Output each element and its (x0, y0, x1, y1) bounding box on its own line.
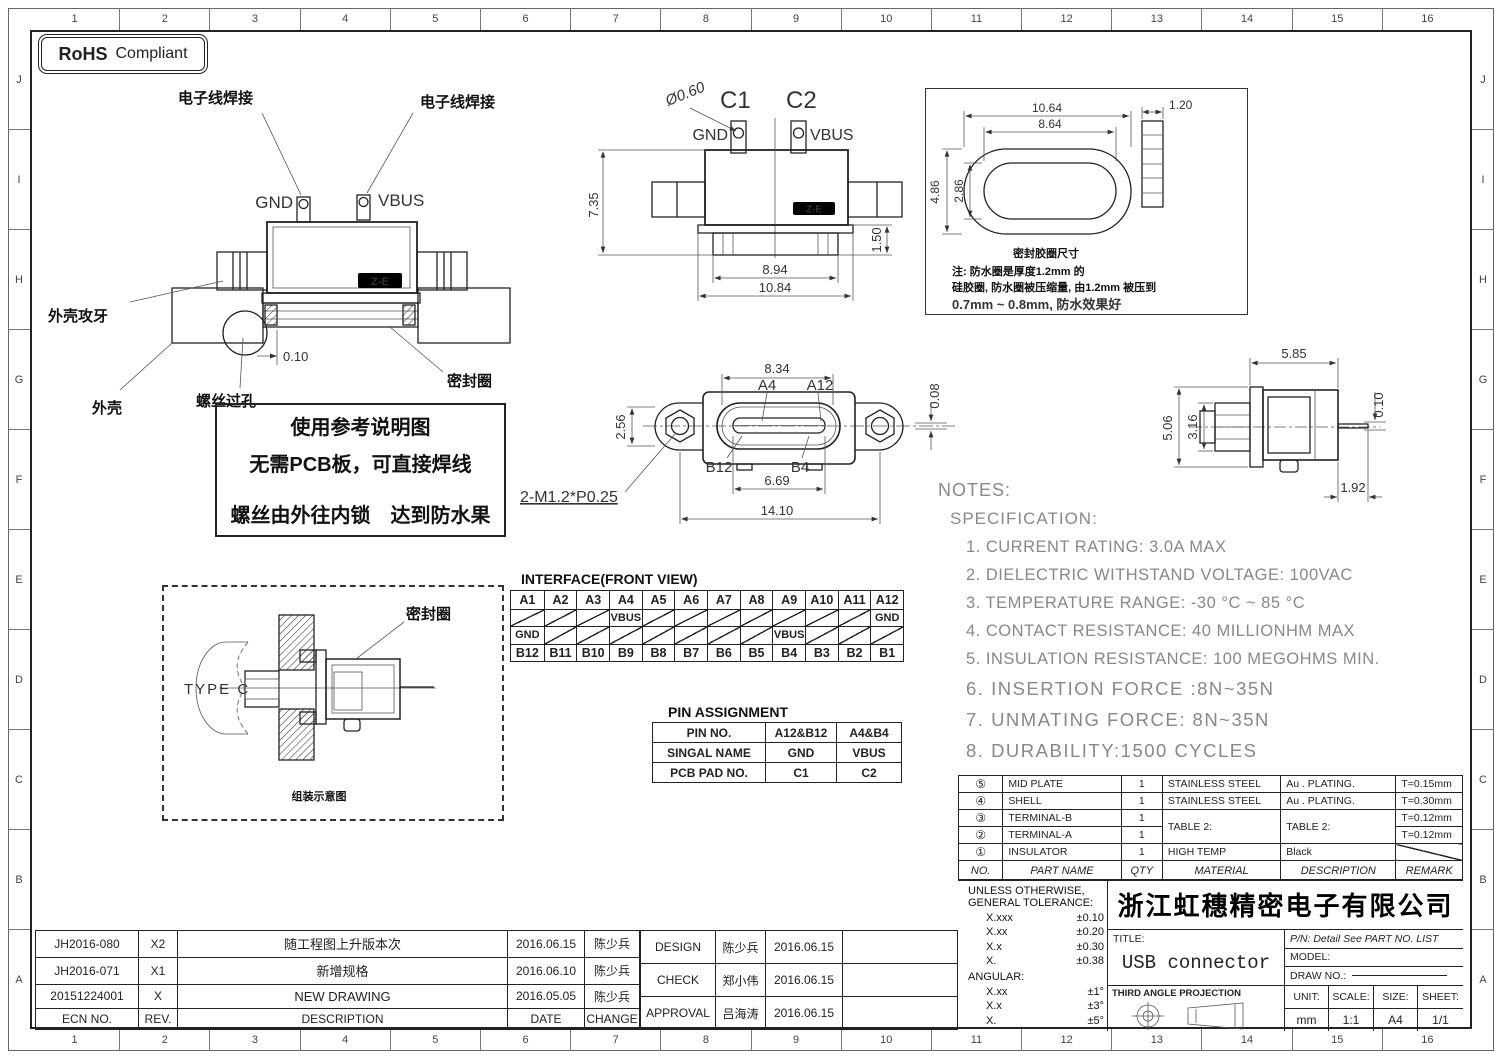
part-material: TABLE 2: (1162, 810, 1280, 844)
ang-val: ±3° (1087, 1000, 1104, 1012)
ruler-cell: 7 (570, 1029, 660, 1051)
pin-cell: B2 (838, 644, 871, 662)
ruler-cell: 16 (1382, 1029, 1472, 1051)
spec-item: 4. CONTACT RESISTANCE: 40 MILLIONHM MAX (966, 622, 1380, 641)
col-rev: REV. (139, 1009, 178, 1030)
ruler-cell: 7 (570, 8, 660, 30)
tolerance-row: X.±0.38 (968, 955, 1104, 967)
col-qty: QTY (1121, 861, 1162, 881)
ruler-cell: A (1472, 929, 1494, 1029)
spec-item: 1. CURRENT RATING: 3.0A MAX (966, 538, 1380, 557)
ang-val: ±1° (1087, 986, 1104, 998)
unit-value: mm (1285, 1009, 1328, 1031)
rev-change: 陈少兵 (585, 931, 640, 958)
drawing-sheet: 12345678910111213141516 1234567891011121… (0, 0, 1502, 1059)
size-label: SIZE: (1374, 986, 1417, 1009)
notes-title: NOTES: (938, 480, 1380, 501)
design-name: 陈少兵 (716, 931, 766, 964)
part-name: INSULATOR (1003, 844, 1121, 861)
pin-cell (674, 626, 707, 644)
approval-name: 吕海涛 (716, 997, 766, 1030)
ang-key: X.x (986, 1000, 1002, 1012)
pin-cell: B1 (870, 644, 903, 662)
col-description: DESCRIPTION (178, 1009, 508, 1030)
dim-14-10: 14.10 (761, 503, 794, 518)
ruler-cell: 10 (841, 1029, 931, 1051)
table-row: CHECK 郑小伟 2016.06.15 (641, 964, 958, 997)
part-qty: 1 (1121, 827, 1162, 844)
rev-change: 陈少兵 (585, 984, 640, 1008)
ruler-cell: C (1472, 729, 1494, 829)
scale-label: SCALE: (1329, 986, 1373, 1009)
pin-cell: A3 (576, 591, 609, 609)
col-remark: REMARK (1396, 861, 1463, 881)
ruler-cell: E (8, 529, 30, 629)
title-cell: TITLE: USB connector (1108, 930, 1285, 984)
pin-cell: B10 (576, 644, 609, 662)
pin-cell (707, 626, 740, 644)
signal-gnd: GND (766, 743, 837, 763)
pin-cell: VBUS (609, 609, 642, 627)
ruler-cell: 6 (480, 1029, 570, 1051)
projection-cell: THIRD ANGLE PROJECTION (1108, 986, 1285, 1031)
seal-ring-label: 密封圈 (406, 605, 451, 623)
angular-row: X.xx±1° (968, 986, 1104, 998)
spec-item: 8. DURABILITY:1500 CYCLES (966, 740, 1380, 762)
ruler-cell: G (8, 329, 30, 429)
rev: X (139, 984, 178, 1008)
pcb-pad-header: PCB PAD NO. (653, 763, 766, 783)
dim-5-06: 5.06 (1160, 415, 1175, 440)
pin-cell: A11 (838, 591, 871, 609)
ruler-top: 12345678910111213141516 (30, 8, 1472, 30)
type-c-label: TYPE C (184, 681, 250, 698)
ruler-cell: 10 (841, 8, 931, 30)
design-date: 2016.06.15 (766, 931, 843, 964)
notes-subtitle: SPECIFICATION: (950, 509, 1380, 529)
approval-label: APPROVAL (641, 997, 716, 1030)
ecn-no: JH2016-080 (36, 931, 139, 958)
ruler-cell: B (1472, 829, 1494, 929)
projection-label: THIRD ANGLE PROJECTION (1112, 988, 1241, 999)
part-description: Au . PLATING. (1281, 793, 1396, 810)
pcb-pad-c2: C2 (837, 763, 902, 783)
c2-label: C2 (786, 87, 817, 114)
ruler-cell: F (8, 429, 30, 529)
ruler-cell: 9 (751, 8, 841, 30)
unit-label: UNIT: (1285, 986, 1328, 1009)
pin-cell (707, 609, 740, 627)
ruler-cell: 5 (390, 8, 480, 30)
pin-cell: B4 (772, 644, 805, 662)
part-name: SHELL (1003, 793, 1121, 810)
dim-8-64: 8.64 (1038, 117, 1062, 131)
table-row: ④ SHELL 1 STAINLESS STEEL Au . PLATING. … (959, 793, 1463, 810)
model-label: MODEL: (1285, 949, 1463, 967)
pin-cell: A1 (511, 591, 544, 609)
ruler-cell: 2 (119, 1029, 209, 1051)
pin-cell: B12 (511, 644, 544, 662)
tol-val: ±0.30 (1077, 941, 1104, 953)
ruler-cell: 4 (300, 1029, 390, 1051)
pin-cell: GND (511, 626, 544, 644)
pin-cell: A9 (772, 591, 805, 609)
ruler-cell: B (8, 829, 30, 929)
part-description: Black (1281, 844, 1396, 861)
dim-10-64: 10.64 (1032, 101, 1062, 115)
ruler-cell: H (8, 229, 30, 329)
ruler-left: JIHGFEDCBA (8, 30, 30, 1029)
part-qty: 1 (1121, 793, 1162, 810)
pin-cell: B8 (642, 644, 675, 662)
ruler-cell: 2 (119, 8, 209, 30)
dim-0-08: 0.08 (927, 383, 942, 408)
tol-val: ±0.20 (1077, 926, 1104, 938)
front-view-drawing: 8.34 A4 A12 2.56 0.08 B12 B4 6.69 14.10 … (515, 362, 965, 547)
assembly-drawing: TYPE C 密封圈 组装示意图 (164, 587, 502, 819)
pin-cell (805, 626, 838, 644)
seal-caption: 密封胶圈尺寸 (1013, 246, 1079, 260)
pin-cell (576, 626, 609, 644)
table-row: JH2016-080 X2 随工程图上升版本次 2016.06.15 陈少兵 (36, 931, 640, 958)
table-row: PIN NO. A12&B12 A4&B4 (653, 723, 902, 743)
part-description: Au . PLATING. (1281, 776, 1396, 793)
ruler-cell: 1 (30, 1029, 119, 1051)
seal-ring-label: 密封圈 (447, 372, 492, 390)
col-part-name: PART NAME (1003, 861, 1121, 881)
draw-no-row: DRAW NO.: (1285, 967, 1463, 984)
usage-note-box: 使用参考说明图 无需PCB板，可直接焊线 螺丝由外往内锁 达到防水果 (215, 403, 506, 537)
shell-label: 外壳 (91, 399, 122, 417)
ruler-cell: J (1472, 30, 1494, 129)
wire-weld-label-left: 电子线焊接 (178, 89, 253, 107)
part-number-note: P/N: Detail See PART NO. LIST (1285, 930, 1463, 948)
tolerance-row: X.xxx±0.10 (968, 912, 1104, 924)
pin-cell (772, 609, 805, 627)
ruler-cell: 8 (660, 8, 750, 30)
rev-description: NEW DRAWING (178, 984, 508, 1008)
part-material: HIGH TEMP (1162, 844, 1280, 861)
tol-val: ±0.10 (1077, 912, 1104, 924)
col-material: MATERIAL (1162, 861, 1280, 881)
pin-cell: A7 (707, 591, 740, 609)
pin-cell: VBUS (772, 626, 805, 644)
ruler-cell: G (1472, 329, 1494, 429)
seal-note-1: 注: 防水圈是厚度1.2mm 的 (952, 264, 1085, 278)
thread-spec-label: 2-M1.2*P0.25 (520, 489, 618, 506)
unit-cell: UNIT: mm (1285, 986, 1329, 1031)
table-row: ⑤ MID PLATE 1 STAINLESS STEEL Au . PLATI… (959, 776, 1463, 793)
gnd-label: GND (692, 127, 728, 144)
approval-date: 2016.06.15 (766, 997, 843, 1030)
ruler-cell: 16 (1382, 8, 1472, 30)
pin-assignment-table: PIN NO. A12&B12 A4&B4 SINGAL NAME GND VB… (652, 722, 902, 783)
tol-val: ±0.38 (1077, 955, 1104, 967)
table-header-row: ECN NO. REV. DESCRIPTION DATE CHANGE (36, 1009, 640, 1030)
tol-key: X.xxx (986, 912, 1013, 924)
usage-line3: 螺丝由外往内锁 达到防水果 (231, 499, 491, 528)
col-no: NO. (959, 861, 1003, 881)
ruler-cell: 4 (300, 8, 390, 30)
title-block: UNLESS OTHERWISE, GENERAL TOLERANCE: X.x… (958, 879, 1463, 1031)
revision-table: JH2016-080 X2 随工程图上升版本次 2016.06.15 陈少兵 J… (35, 930, 640, 1030)
b12-label: B12 (706, 459, 733, 476)
dim-1-20: 1.20 (1169, 98, 1193, 112)
pin-cell (544, 626, 577, 644)
dim-3-16: 3.16 (1185, 414, 1200, 439)
dim-1-50: 1.50 (869, 227, 884, 252)
rev-change: 陈少兵 (585, 957, 640, 984)
signal-vbus: VBUS (837, 743, 902, 763)
spec-item: 5. INSULATION RESISTANCE: 100 MEGOHMS MI… (966, 650, 1380, 669)
part-material: STAINLESS STEEL (1162, 793, 1280, 810)
rev-description: 新增规格 (178, 957, 508, 984)
pin-no-a4b4: A4&B4 (837, 723, 902, 743)
tol-key: X. (986, 955, 996, 967)
dim-2-56: 2.56 (613, 414, 628, 439)
ruler-cell: E (1472, 529, 1494, 629)
dim-0-10: 0.10 (1371, 392, 1386, 417)
pin-cell (609, 626, 642, 644)
rev-date: 2016.06.10 (508, 957, 585, 984)
assembly-caption: 组装示意图 (292, 789, 347, 803)
title-label: TITLE: (1113, 933, 1145, 945)
pin-cell: B9 (609, 644, 642, 662)
ruler-cell: 3 (209, 1029, 299, 1051)
col-change: CHANGE (585, 1009, 640, 1030)
ruler-cell: 11 (931, 1029, 1021, 1051)
rev-date: 2016.06.15 (508, 931, 585, 958)
pin-cell: B7 (674, 644, 707, 662)
rev-date: 2016.05.05 (508, 984, 585, 1008)
interface-table-title: INTERFACE(FRONT VIEW) (521, 571, 698, 587)
ruler-cell: 13 (1111, 8, 1201, 30)
pin-cell: A6 (674, 591, 707, 609)
ang-key: X.xx (986, 986, 1007, 998)
col-ecn-no: ECN NO. (36, 1009, 139, 1030)
ruler-cell: H (1472, 229, 1494, 329)
tolerance-title2: GENERAL TOLERANCE: (968, 897, 1107, 909)
pin-no-a12b12: A12&B12 (766, 723, 837, 743)
ruler-cell: I (1472, 129, 1494, 229)
table-row: 20151224001 X NEW DRAWING 2016.05.05 陈少兵 (36, 984, 640, 1008)
ruler-cell: 8 (660, 1029, 750, 1051)
third-angle-projection-icon (1128, 1002, 1258, 1030)
ecn-no: JH2016-071 (36, 957, 139, 984)
tolerance-title: UNLESS OTHERWISE, (968, 885, 1107, 897)
top-view-geometry (598, 108, 902, 301)
ruler-cell: I (8, 129, 30, 229)
part-remark (1396, 844, 1463, 861)
ruler-cell: 6 (480, 8, 570, 30)
pin-cell: B3 (805, 644, 838, 662)
notes-block: NOTES: SPECIFICATION: 1. CURRENT RATING:… (938, 480, 1380, 762)
ruler-cell: 14 (1201, 1029, 1291, 1051)
empty-cell (843, 931, 958, 964)
rohs-bold: RoHS (58, 44, 107, 65)
dim-10-84: 10.84 (759, 280, 792, 295)
approval-block: DESIGN 陈少兵 2016.06.15 CHECK 郑小伟 2016.06.… (640, 930, 958, 1030)
pin-no-header: PIN NO. (653, 723, 766, 743)
drawing-title: USB connector (1108, 952, 1284, 974)
pin-cell: A2 (544, 591, 577, 609)
brand-logo-text: Z-E (371, 276, 389, 288)
pin-cell: B11 (544, 644, 577, 662)
side-view-geometry (120, 113, 510, 390)
rev-description: 随工程图上升版本次 (178, 931, 508, 958)
ruler-cell: 5 (390, 1029, 480, 1051)
pin-cell: B5 (740, 644, 773, 662)
part-remark: T=0.12mm (1396, 810, 1463, 827)
table-row: JH2016-071 X1 新增规格 2016.06.10 陈少兵 (36, 957, 640, 984)
pin-assignment-title: PIN ASSIGNMENT (668, 704, 788, 720)
pin-cell: A8 (740, 591, 773, 609)
pin-cell (838, 626, 871, 644)
wire-weld-label-right: 电子线焊接 (420, 93, 495, 111)
table-row: APPROVAL 吕海涛 2016.06.15 (641, 997, 958, 1030)
ruler-cell: 12 (1021, 1029, 1111, 1051)
a12-label: A12 (807, 377, 834, 394)
tolerance-row: X.xx±0.20 (968, 926, 1104, 938)
pin-cell (576, 609, 609, 627)
ruler-cell: 13 (1111, 1029, 1201, 1051)
check-label: CHECK (641, 964, 716, 997)
pin-cell (838, 609, 871, 627)
sheet-value: 1/1 (1418, 1009, 1463, 1031)
brand-logo-text: Z-E (806, 205, 822, 216)
part-no: ① (959, 844, 1003, 861)
pcb-pad-c1: C1 (766, 763, 837, 783)
angular-row: X.±5° (968, 1015, 1104, 1027)
vbus-label: VBUS (378, 191, 424, 210)
part-remark: T=0.15mm (1396, 776, 1463, 793)
tol-key: X.x (986, 941, 1002, 953)
dim-8-94: 8.94 (762, 262, 787, 277)
pin-cell: A5 (642, 591, 675, 609)
ruler-cell: D (8, 629, 30, 729)
ruler-cell: 3 (209, 8, 299, 30)
c1-label: C1 (720, 87, 751, 114)
pin-cell: B6 (707, 644, 740, 662)
ruler-cell: 1 (30, 8, 119, 30)
dim-6-69: 6.69 (764, 473, 789, 488)
pin-cell (740, 626, 773, 644)
table-header-row: NO. PART NAME QTY MATERIAL DESCRIPTION R… (959, 861, 1463, 881)
draw-no-label: DRAW NO.: (1290, 970, 1346, 982)
ruler-cell: 15 (1292, 8, 1382, 30)
check-date: 2016.06.15 (766, 964, 843, 997)
part-name: TERMINAL-B (1003, 810, 1121, 827)
ruler-cell: 12 (1021, 8, 1111, 30)
dim-dia-0-60: Ø0.60 (662, 78, 708, 110)
part-description: TABLE 2: (1281, 810, 1396, 844)
sheet-cell: SHEET: 1/1 (1418, 986, 1463, 1031)
pin-cell (674, 609, 707, 627)
ruler-cell: C (8, 729, 30, 829)
draw-no-blank (1352, 975, 1447, 976)
gnd-label: GND (255, 193, 293, 212)
ang-key: X. (986, 1015, 996, 1027)
dim-4-86: 4.86 (928, 180, 942, 204)
pin-cell (544, 609, 577, 627)
rev: X1 (139, 957, 178, 984)
part-no: ④ (959, 793, 1003, 810)
pin-cell (642, 626, 675, 644)
b4-label: B4 (791, 459, 809, 476)
table-row: DESIGN 陈少兵 2016.06.15 (641, 931, 958, 964)
ruler-cell: D (1472, 629, 1494, 729)
ruler-bottom: 12345678910111213141516 (30, 1029, 1472, 1051)
usage-line1: 使用参考说明图 (291, 411, 431, 440)
dim-7-35: 7.35 (586, 192, 601, 217)
size-cell: SIZE: A4 (1374, 986, 1418, 1031)
spec-item: 6. INSERTION FORCE :8N~35N (966, 678, 1380, 700)
top-view-drawing: Z-E Ø0.60 C1 C2 GND VBUS 7.35 8.94 10.84… (590, 78, 930, 358)
angular-title: ANGULAR: (968, 971, 1107, 983)
ruler-cell: 11 (931, 8, 1021, 30)
scale-value: 1:1 (1329, 1009, 1373, 1031)
part-no: ② (959, 827, 1003, 844)
rohs-badge: RoHS Compliant (38, 34, 208, 74)
part-name: MID PLATE (1003, 776, 1121, 793)
pin-cell (511, 609, 544, 627)
angular-row: X.x±3° (968, 1000, 1104, 1012)
pin-cell: GND (870, 609, 903, 627)
company-name: 浙江虹穗精密电子有限公司 (1108, 880, 1463, 930)
a4-label: A4 (758, 377, 776, 394)
sheet-label: SHEET: (1418, 986, 1463, 1009)
seal-note-3: 0.7mm ~ 0.8mm, 防水效果好 (952, 297, 1121, 312)
ruler-cell: A (8, 929, 30, 1029)
spec-item: 2. DIELECTRIC WITHSTAND VOLTAGE: 100VAC (966, 566, 1380, 585)
seal-drawing: 10.64 8.64 4.86 2.86 1.20 密封胶圈尺寸 注: 防水圈是… (926, 89, 1246, 313)
rev: X2 (139, 931, 178, 958)
shell-tap-label: 外壳攻牙 (47, 307, 108, 325)
table-row: ③ TERMINAL-B 1 TABLE 2: TABLE 2: T=0.12m… (959, 810, 1463, 827)
dim-2-86: 2.86 (952, 179, 966, 203)
part-no: ③ (959, 810, 1003, 827)
part-qty: 1 (1121, 844, 1162, 861)
dim-5-85: 5.85 (1281, 346, 1306, 361)
col-description: DESCRIPTION (1281, 861, 1396, 881)
ruler-right: JIHGFEDCBA (1472, 30, 1494, 1029)
table-row: SINGAL NAME GND VBUS (653, 743, 902, 763)
pin-cell (740, 609, 773, 627)
dim-8-34: 8.34 (764, 361, 789, 376)
ruler-cell: J (8, 30, 30, 129)
tolerance-block: UNLESS OTHERWISE, GENERAL TOLERANCE: X.x… (958, 880, 1108, 1031)
spec-list: 1. CURRENT RATING: 3.0A MAX 2. DIELECTRI… (938, 538, 1380, 762)
signal-name-header: SINGAL NAME (653, 743, 766, 763)
pin-cell: A10 (805, 591, 838, 609)
size-value: A4 (1374, 1009, 1417, 1031)
pin-cell (870, 626, 903, 644)
empty-cell (843, 964, 958, 997)
pin-cell (805, 609, 838, 627)
table-row: PCB PAD NO. C1 C2 (653, 763, 902, 783)
ang-val: ±5° (1087, 1015, 1104, 1027)
tol-key: X.xx (986, 926, 1007, 938)
col-date: DATE (508, 1009, 585, 1030)
part-remark: T=0.12mm (1396, 827, 1463, 844)
parts-table: ⑤ MID PLATE 1 STAINLESS STEEL Au . PLATI… (958, 775, 1463, 881)
seal-note-2: 硅胶圈, 防水圈被压缩量, 由1.2mm 被压到 (952, 280, 1156, 294)
pin-cell (642, 609, 675, 627)
rohs-text: Compliant (115, 45, 187, 63)
part-no: ⑤ (959, 776, 1003, 793)
tolerance-row: X.x±0.30 (968, 941, 1104, 953)
pin-cell: A12 (870, 591, 903, 609)
